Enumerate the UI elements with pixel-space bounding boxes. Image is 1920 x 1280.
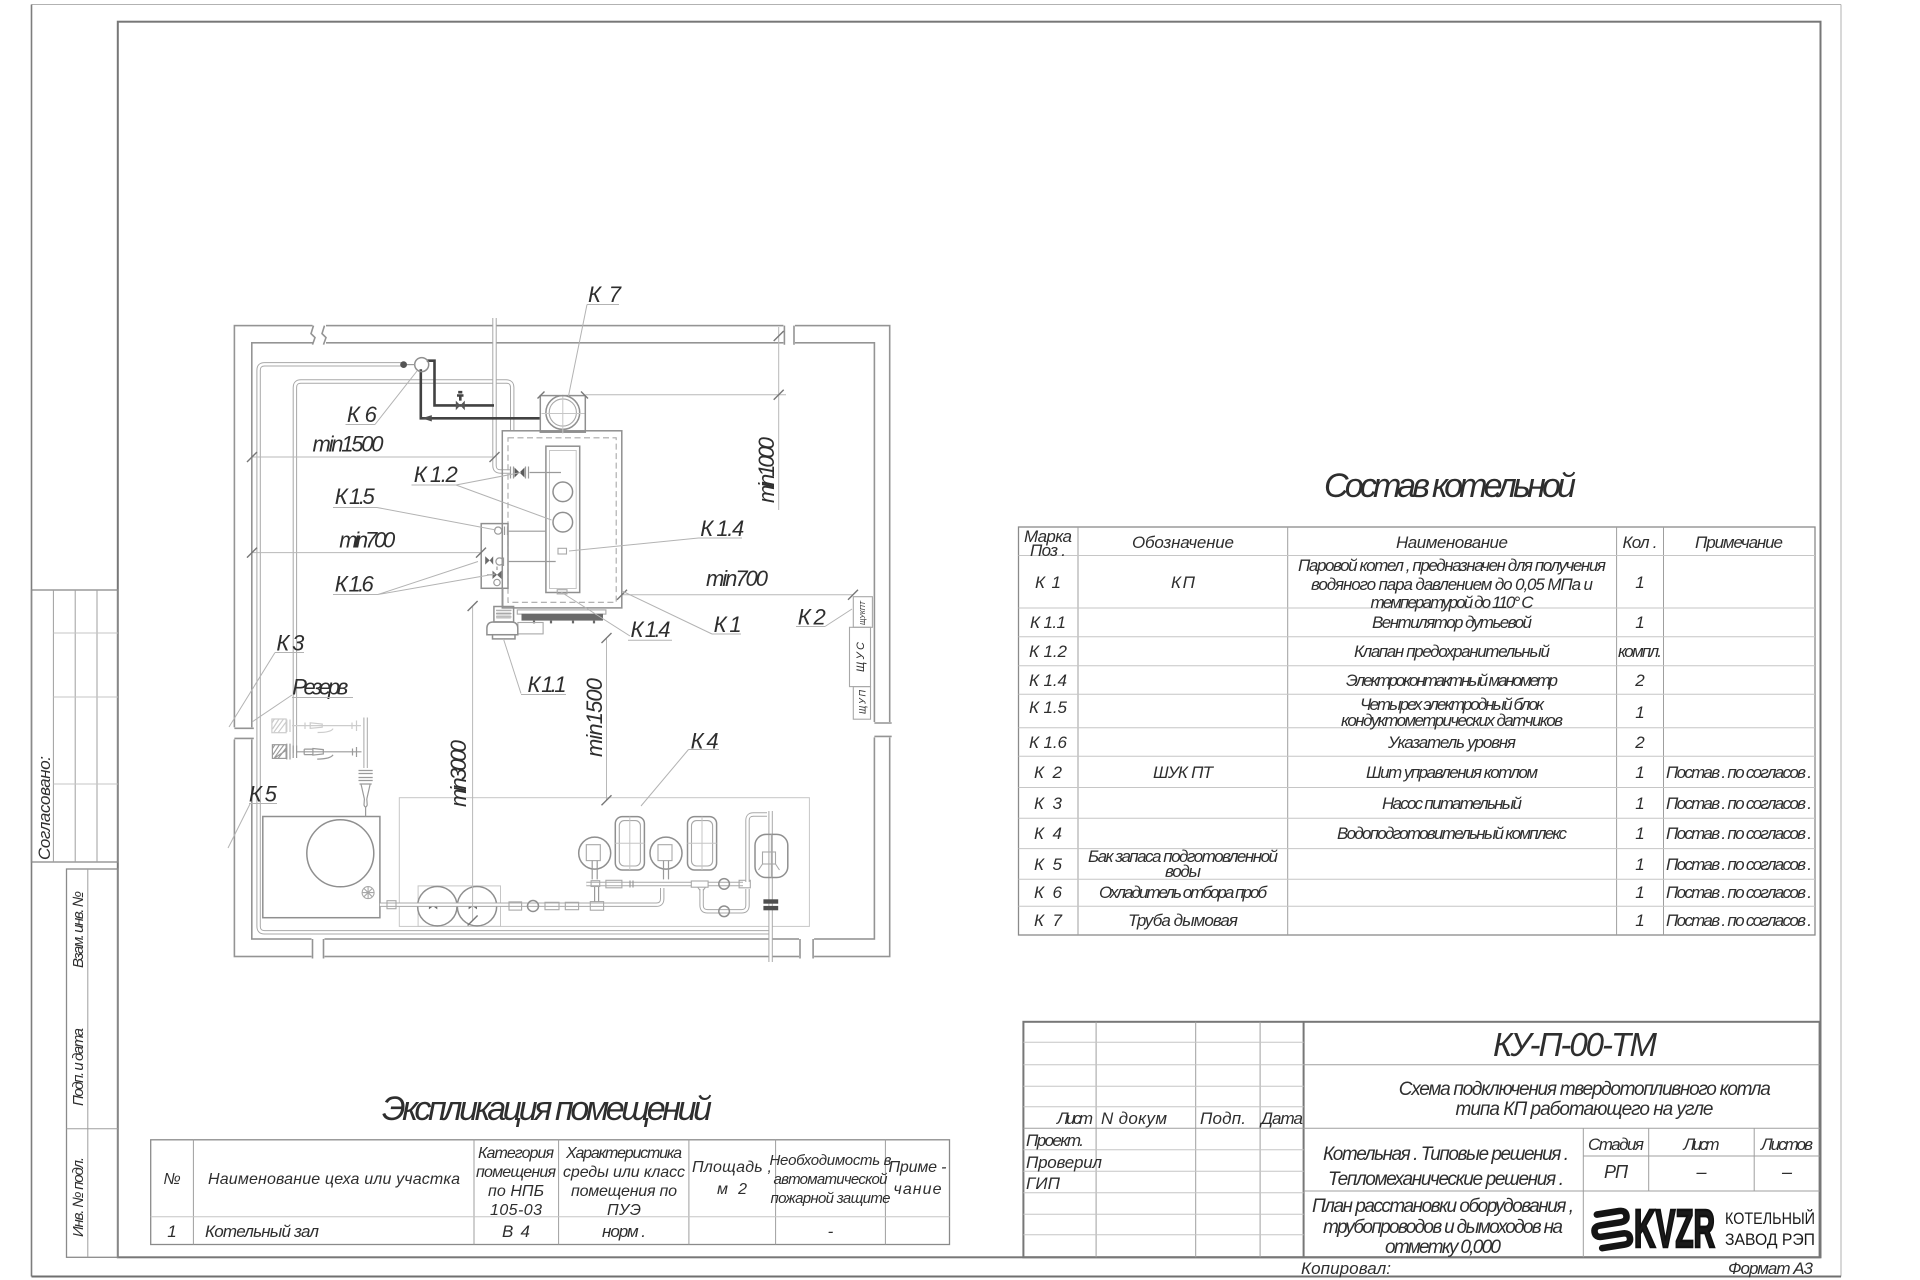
svg-text:трубопроводов и дымоходов на: трубопроводов и дымоходов на — [1323, 1217, 1563, 1238]
svg-text:К 2: К 2 — [1034, 763, 1063, 782]
svg-text:Котельная . Типовые решения .: Котельная . Типовые решения . — [1323, 1144, 1569, 1165]
svg-text:Постав . по согласов .: Постав . по согласов . — [1666, 824, 1812, 843]
svg-text:Паровой котел , предназначен д: Паровой котел , предназначен для получен… — [1298, 556, 1606, 575]
svg-text:К 5: К 5 — [1034, 855, 1063, 874]
svg-text:типа КП работающего на угле: типа КП работающего на угле — [1456, 1099, 1714, 1120]
svg-text:компл.: компл. — [1618, 642, 1662, 661]
svg-text:Тепломеханические решения .: Тепломеханические решения . — [1328, 1169, 1564, 1190]
svg-text:К 3: К 3 — [1034, 794, 1063, 813]
svg-text:Категория: Категория — [478, 1145, 554, 1162]
svg-text:ЩУП: ЩУП — [858, 690, 868, 714]
svg-text:Кол .: Кол . — [1623, 533, 1658, 552]
svg-text:Водоподготовительный комплекс: Водоподготовительный комплекс — [1337, 824, 1568, 843]
svg-text:Котельный зал: Котельный зал — [205, 1222, 319, 1241]
svg-text:105-03: 105-03 — [490, 1202, 542, 1219]
svg-text:Постав . по согласов .: Постав . по согласов . — [1666, 763, 1812, 782]
svg-text:Согласовано:: Согласовано: — [35, 756, 54, 860]
svg-text:Постав . по согласов .: Постав . по согласов . — [1666, 883, 1812, 902]
svg-text:Наименование цеха или участка: Наименование цеха или участка — [208, 1171, 460, 1188]
svg-text:Вентилятор дутьевой: Вентилятор дутьевой — [1372, 613, 1533, 632]
svg-text:-: - — [828, 1222, 834, 1241]
svg-text:min700: min700 — [706, 566, 769, 591]
svg-text:водяного пара давлением до 0,: водяного пара давлением до 0,05 МПа и — [1311, 575, 1594, 594]
svg-text:Взам. инв. №: Взам. инв. № — [70, 891, 87, 968]
svg-text:Обозначение: Обозначение — [1132, 533, 1234, 552]
svg-text:Указатель уровня: Указатель уровня — [1387, 733, 1516, 752]
svg-text:м 2: м 2 — [717, 1181, 747, 1198]
svg-text:1: 1 — [1635, 703, 1644, 722]
svg-text:2: 2 — [1634, 671, 1645, 690]
svg-text:автоматической: автоматической — [774, 1171, 889, 1188]
svg-text:KVZR: KVZR — [1634, 1199, 1715, 1259]
svg-text:Проверил: Проверил — [1026, 1153, 1102, 1172]
svg-text:1: 1 — [1635, 911, 1644, 930]
svg-text:Состав котельной: Состав котельной — [1324, 467, 1576, 505]
svg-text:1: 1 — [1635, 794, 1644, 813]
svg-text:ШУК ПТ: ШУК ПТ — [1153, 763, 1215, 782]
svg-text:Характеристика: Характеристика — [565, 1145, 682, 1162]
svg-text:К 1.5: К 1.5 — [335, 484, 376, 509]
svg-text:Постав . по согласов .: Постав . по согласов . — [1666, 911, 1812, 930]
svg-text:ЗАВОД РЭП: ЗАВОД РЭП — [1725, 1230, 1815, 1249]
svg-text:1: 1 — [1635, 613, 1644, 632]
svg-text:К 4: К 4 — [1034, 824, 1062, 843]
svg-text:ЩУС: ЩУС — [855, 642, 867, 672]
svg-text:К 3: К 3 — [276, 631, 305, 656]
svg-text:ПУЭ: ПУЭ — [607, 1202, 641, 1219]
svg-text:Подп. и дата: Подп. и дата — [70, 1028, 87, 1106]
svg-text:К 1.2: К 1.2 — [414, 462, 458, 487]
svg-text:1: 1 — [1635, 824, 1644, 843]
svg-text:Необходимость в: Необходимость в — [770, 1152, 892, 1169]
svg-text:К 1.6: К 1.6 — [1029, 733, 1068, 752]
svg-text:Лист: Лист — [1056, 1109, 1093, 1128]
svg-text:КП: КП — [1171, 573, 1196, 592]
svg-text:min1500: min1500 — [313, 432, 385, 457]
svg-text:К 7: К 7 — [1034, 911, 1063, 930]
svg-text:Копировал:: Копировал: — [1301, 1259, 1391, 1278]
svg-text:Дата: Дата — [1259, 1109, 1303, 1128]
svg-text:Проект.: Проект. — [1026, 1131, 1084, 1150]
svg-text:К 1: К 1 — [1035, 573, 1061, 592]
svg-text:№: № — [163, 1171, 180, 1188]
svg-text:Инв. № подл.: Инв. № подл. — [70, 1157, 87, 1237]
svg-text:min1000: min1000 — [754, 436, 779, 503]
svg-text:КУ-П-00-ТМ: КУ-П-00-ТМ — [1493, 1026, 1658, 1063]
svg-text:КОТЕЛЬНЫЙ: КОТЕЛЬНЫЙ — [1725, 1209, 1815, 1228]
svg-text:среды или класс: среды или класс — [563, 1164, 685, 1181]
svg-text:К 2: К 2 — [798, 605, 826, 630]
svg-text:К 1: К 1 — [714, 612, 742, 637]
svg-text:Подп.: Подп. — [1200, 1109, 1246, 1128]
svg-text:Наименование: Наименование — [1396, 533, 1508, 552]
svg-text:К 1.4: К 1.4 — [1029, 671, 1067, 690]
svg-text:норм .: норм . — [602, 1222, 646, 1241]
svg-text:Резерв: Резерв — [292, 675, 348, 700]
svg-text:К 1.4: К 1.4 — [700, 516, 744, 541]
svg-text:помещения по: помещения по — [571, 1183, 677, 1200]
svg-text:К 1.6: К 1.6 — [335, 572, 375, 597]
svg-text:Стадия: Стадия — [1588, 1135, 1644, 1154]
svg-text:–: – — [1781, 1162, 1793, 1182]
svg-text:чание: чание — [894, 1181, 942, 1198]
svg-text:Шит управления котлом: Шит управления котлом — [1366, 763, 1538, 782]
svg-text:ЩУКПТ: ЩУКПТ — [860, 600, 867, 625]
svg-text:по НПБ: по НПБ — [488, 1183, 544, 1200]
svg-text:воды: воды — [1165, 862, 1201, 881]
svg-text:Клапан предохранительный: Клапан предохранительный — [1354, 642, 1551, 661]
svg-text:1: 1 — [1635, 763, 1644, 782]
svg-text:К 1.4: К 1.4 — [631, 617, 671, 642]
svg-text:–: – — [1695, 1162, 1707, 1182]
svg-text:К 7: К 7 — [588, 282, 622, 307]
svg-text:К 5: К 5 — [249, 782, 278, 807]
svg-text:К 1.2: К 1.2 — [1029, 642, 1068, 661]
svg-text:min1500: min1500 — [582, 677, 607, 757]
svg-text:Площадь ,: Площадь , — [692, 1159, 772, 1176]
svg-text:1: 1 — [1635, 855, 1644, 874]
svg-text:1: 1 — [167, 1222, 176, 1241]
svg-text:N докум: N докум — [1101, 1109, 1167, 1128]
svg-text:Экспликация помещений: Экспликация помещений — [382, 1090, 712, 1128]
svg-text:К 4: К 4 — [691, 729, 719, 754]
svg-text:Лист: Лист — [1683, 1135, 1720, 1154]
svg-text:1: 1 — [1635, 573, 1644, 592]
svg-text:температурой до 110° С: температурой до 110° С — [1371, 593, 1535, 612]
svg-text:План расстановки оборудования: План расстановки оборудования , — [1312, 1196, 1574, 1217]
svg-text:Охладитель отбора проб: Охладитель отбора проб — [1099, 883, 1268, 902]
svg-text:Листов: Листов — [1760, 1135, 1813, 1154]
svg-text:К 1.1: К 1.1 — [528, 672, 567, 697]
svg-text:помещения: помещения — [476, 1164, 556, 1181]
svg-text:Примечание: Примечание — [1695, 533, 1783, 552]
svg-text:Формат А3: Формат А3 — [1728, 1259, 1814, 1278]
svg-text:К 1.1: К 1.1 — [1030, 613, 1066, 632]
svg-text:min700: min700 — [339, 528, 396, 553]
svg-text:Постав . по согласов .: Постав . по согласов . — [1666, 855, 1812, 874]
svg-text:Насос питательный: Насос питательный — [1382, 794, 1523, 813]
svg-text:Схема подключения твердотоплив: Схема подключения твердотопливного котла — [1399, 1079, 1771, 1100]
svg-text:В 4: В 4 — [502, 1222, 530, 1241]
svg-text:ГИП: ГИП — [1026, 1174, 1061, 1193]
svg-text:Труба дымовая: Труба дымовая — [1128, 911, 1238, 930]
svg-text:кондуктометрических датчиков: кондуктометрических датчиков — [1341, 711, 1563, 730]
svg-text:РП: РП — [1604, 1162, 1629, 1182]
svg-text:К 6: К 6 — [1034, 883, 1063, 902]
svg-text:К 1.5: К 1.5 — [1029, 698, 1068, 717]
svg-text:отметку 0,000: отметку 0,000 — [1385, 1237, 1501, 1258]
svg-text:Поз .: Поз . — [1030, 541, 1066, 560]
svg-text:min3000: min3000 — [446, 739, 471, 807]
svg-text:Электроконтактный манометр: Электроконтактный манометр — [1346, 671, 1558, 690]
svg-text:1: 1 — [1635, 883, 1644, 902]
svg-text:пожарной защите: пожарной защите — [771, 1190, 891, 1207]
svg-text:Приме -: Приме - — [889, 1159, 947, 1176]
svg-text:К 6: К 6 — [347, 402, 378, 427]
svg-text:Постав . по согласов .: Постав . по согласов . — [1666, 794, 1812, 813]
svg-text:2: 2 — [1634, 733, 1645, 752]
